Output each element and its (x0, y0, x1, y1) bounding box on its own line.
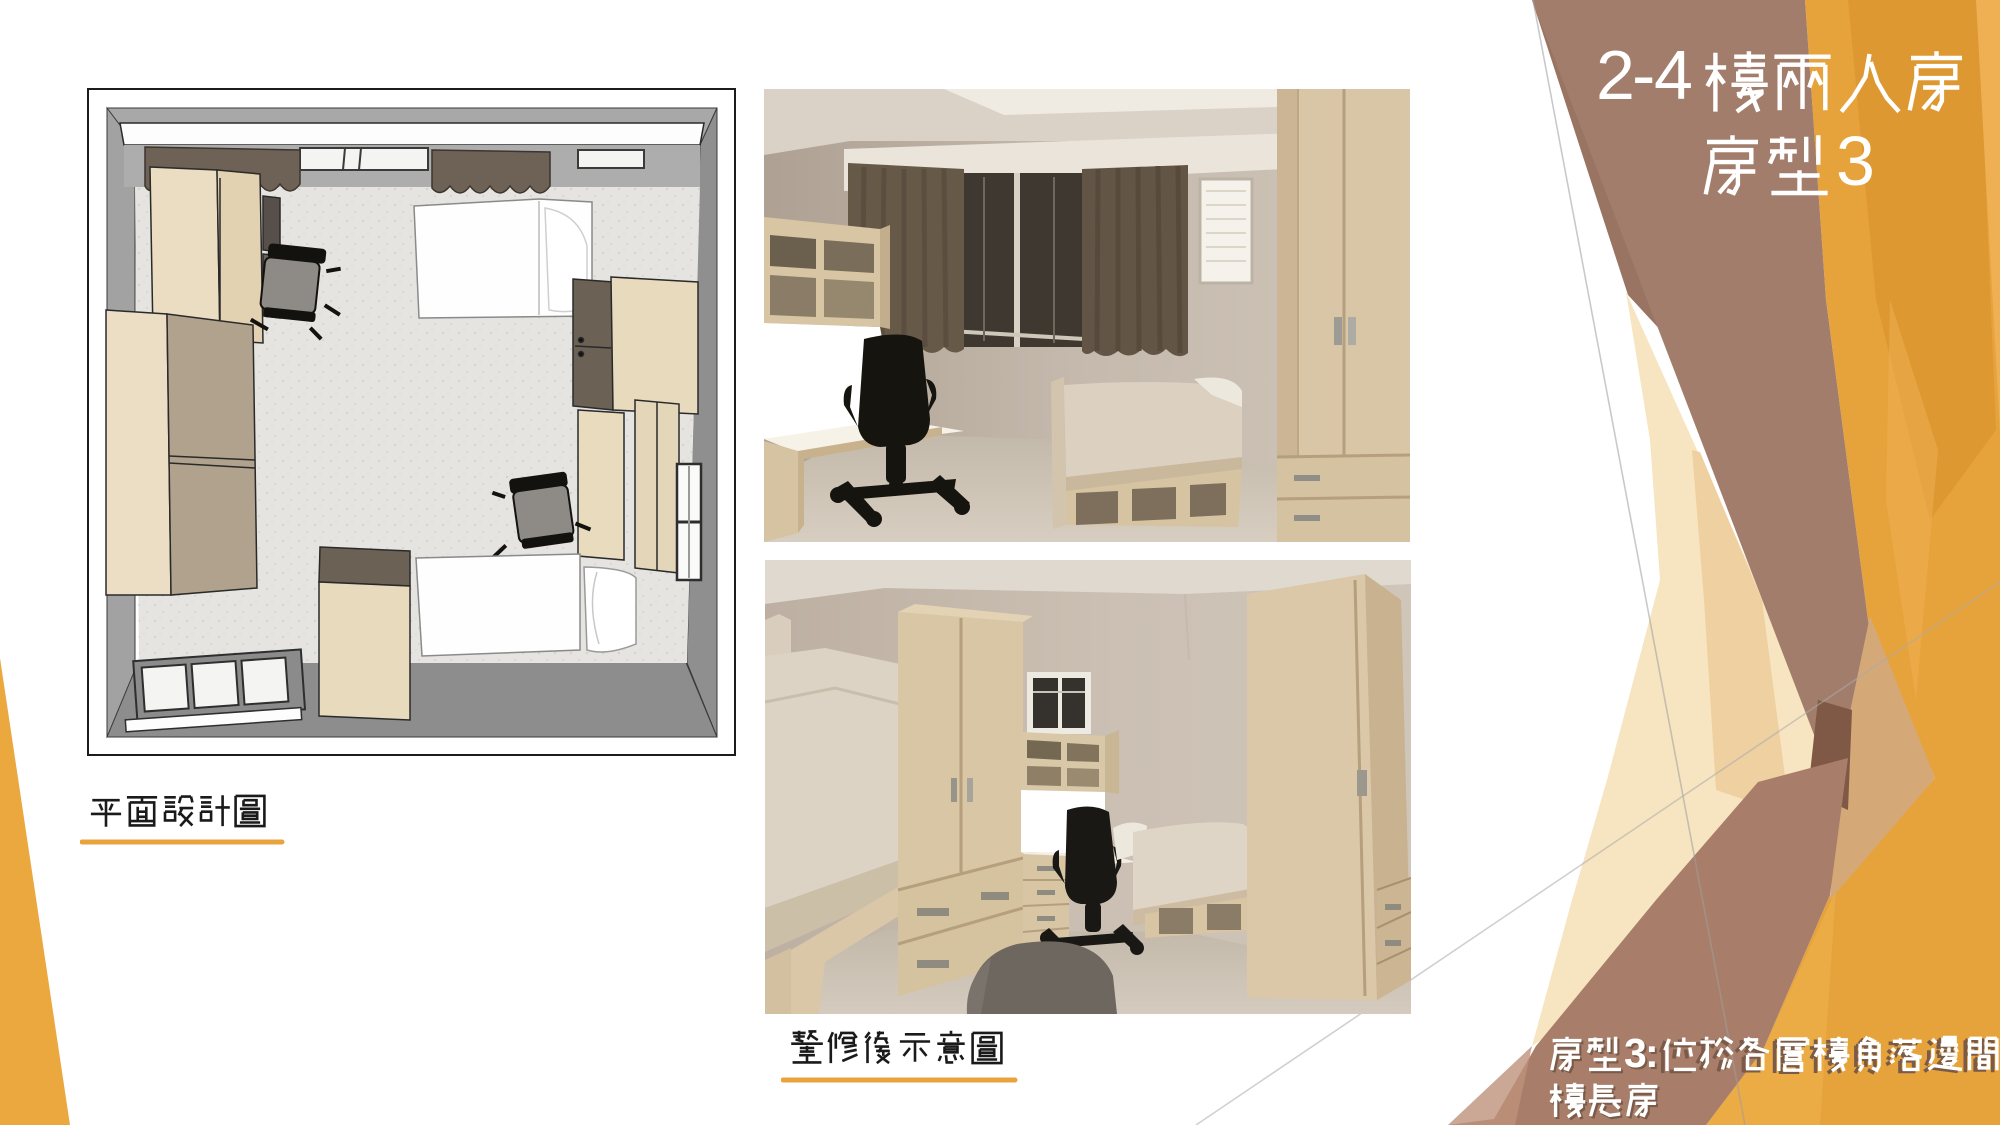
svg-text:3: 3 (1836, 122, 1875, 200)
svg-text:2: 2 (1596, 40, 1635, 114)
svg-text:4: 4 (1654, 40, 1693, 114)
svg-text:3: 3 (1624, 1030, 1647, 1076)
svg-text:-: - (1632, 40, 1655, 114)
svg-text::: : (1645, 1030, 1659, 1076)
